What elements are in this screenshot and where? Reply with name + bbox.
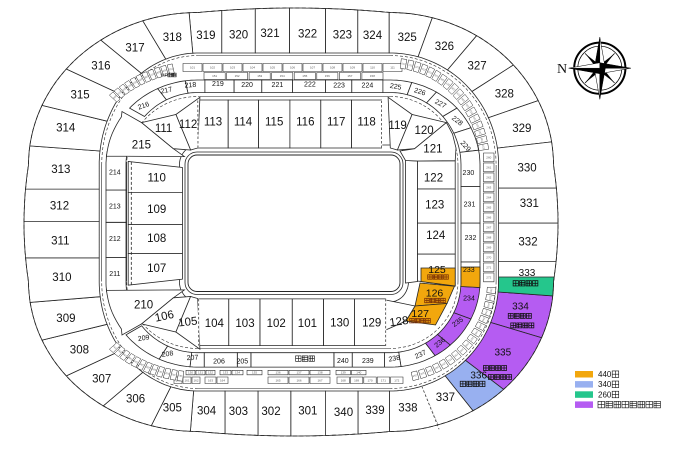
svg-text:272: 272 — [486, 276, 491, 280]
svg-text:135: 135 — [252, 371, 257, 375]
svg-text:VIP: VIP — [160, 73, 167, 78]
svg-text:165: 165 — [275, 378, 280, 382]
svg-text:125: 125 — [428, 264, 446, 276]
svg-text:130: 130 — [330, 317, 349, 329]
svg-text:326: 326 — [435, 41, 454, 53]
svg-text:317: 317 — [125, 42, 144, 54]
svg-text:261: 261 — [486, 166, 491, 170]
svg-text:268: 268 — [486, 236, 491, 240]
svg-text:161: 161 — [184, 378, 189, 382]
svg-text:219: 219 — [212, 81, 224, 88]
svg-text:108: 108 — [330, 66, 335, 70]
svg-text:231: 231 — [464, 201, 476, 208]
svg-text:138: 138 — [317, 371, 322, 375]
svg-text:136: 136 — [275, 371, 280, 375]
svg-text:265: 265 — [486, 206, 491, 210]
svg-text:304: 304 — [197, 405, 217, 417]
svg-text:312: 312 — [50, 201, 69, 213]
svg-text:269: 269 — [486, 246, 491, 250]
svg-text:338: 338 — [398, 402, 417, 414]
svg-text:102: 102 — [210, 66, 215, 70]
svg-text:214: 214 — [109, 169, 121, 176]
svg-text:102: 102 — [267, 318, 286, 330]
svg-text:151: 151 — [212, 74, 217, 78]
svg-text:330: 330 — [518, 163, 537, 175]
svg-text:334: 334 — [512, 302, 529, 313]
svg-text:218: 218 — [184, 82, 196, 90]
svg-text:153: 153 — [257, 74, 262, 78]
svg-text:213: 213 — [109, 203, 121, 210]
svg-text:122: 122 — [424, 172, 443, 184]
svg-text:305: 305 — [163, 403, 182, 415]
svg-text:332: 332 — [518, 237, 537, 249]
svg-text:221: 221 — [272, 82, 284, 89]
svg-text:112: 112 — [179, 119, 197, 131]
svg-text:270: 270 — [486, 256, 491, 260]
svg-text:325: 325 — [398, 32, 417, 44]
svg-text:323: 323 — [333, 29, 352, 41]
svg-text:126: 126 — [426, 288, 444, 300]
svg-text:110: 110 — [148, 173, 166, 185]
svg-text:113: 113 — [204, 117, 222, 129]
svg-text:337: 337 — [436, 392, 455, 404]
svg-text:263: 263 — [486, 186, 491, 190]
svg-text:266: 266 — [486, 216, 491, 220]
svg-text:264: 264 — [486, 196, 491, 200]
svg-text:271: 271 — [486, 266, 491, 270]
svg-text:105: 105 — [270, 66, 275, 70]
svg-text:310: 310 — [52, 272, 71, 284]
svg-text:118: 118 — [357, 117, 375, 129]
svg-text:158: 158 — [370, 74, 375, 78]
svg-text:103: 103 — [230, 66, 235, 70]
svg-text:207: 207 — [187, 354, 199, 362]
svg-text:313: 313 — [51, 164, 70, 176]
svg-text:260: 260 — [598, 390, 612, 399]
svg-text:340: 340 — [598, 380, 612, 389]
svg-text:120: 120 — [415, 125, 434, 137]
svg-text:315: 315 — [71, 90, 90, 102]
svg-text:223: 223 — [333, 82, 345, 89]
svg-text:103: 103 — [235, 318, 254, 330]
svg-text:107: 107 — [310, 66, 315, 70]
svg-text:234: 234 — [463, 295, 475, 302]
svg-text:157: 157 — [347, 74, 352, 78]
svg-text:302: 302 — [261, 406, 280, 418]
svg-text:169: 169 — [354, 378, 359, 382]
svg-text:240: 240 — [337, 358, 349, 365]
svg-text:121: 121 — [423, 143, 442, 155]
svg-text:140: 140 — [356, 371, 361, 375]
svg-text:239: 239 — [362, 358, 374, 365]
svg-text:210: 210 — [134, 299, 153, 311]
svg-text:260: 260 — [486, 156, 491, 160]
svg-text:319: 319 — [196, 30, 215, 42]
svg-text:101: 101 — [298, 318, 317, 330]
svg-text:106: 106 — [290, 66, 295, 70]
svg-text:116: 116 — [296, 117, 314, 129]
svg-text:109: 109 — [350, 66, 355, 70]
svg-text:139: 139 — [341, 371, 346, 375]
svg-text:129: 129 — [362, 317, 381, 329]
svg-text:115: 115 — [265, 117, 283, 129]
svg-text:133: 133 — [223, 371, 228, 375]
svg-text:114: 114 — [234, 117, 253, 129]
svg-text:124: 124 — [426, 230, 446, 242]
svg-text:303: 303 — [229, 406, 248, 418]
svg-text:164: 164 — [220, 378, 225, 382]
svg-text:107: 107 — [147, 263, 166, 275]
svg-text:137: 137 — [296, 371, 301, 375]
svg-text:172: 172 — [394, 378, 399, 382]
svg-text:333: 333 — [519, 268, 536, 279]
svg-text:162: 162 — [193, 378, 198, 382]
svg-text:322: 322 — [298, 29, 317, 41]
svg-text:324: 324 — [363, 30, 383, 42]
svg-text:331: 331 — [520, 198, 539, 210]
svg-text:311: 311 — [51, 236, 69, 248]
svg-text:170: 170 — [367, 378, 372, 382]
svg-text:131: 131 — [198, 371, 203, 375]
svg-text:130: 130 — [188, 371, 193, 375]
svg-text:163: 163 — [208, 378, 213, 382]
svg-text:328: 328 — [495, 88, 514, 100]
svg-text:117: 117 — [327, 117, 345, 129]
svg-text:314: 314 — [56, 122, 76, 134]
svg-text:104: 104 — [250, 66, 255, 70]
svg-text:108: 108 — [147, 233, 166, 245]
svg-text:111: 111 — [155, 123, 172, 135]
svg-text:123: 123 — [425, 200, 444, 212]
svg-text:104: 104 — [205, 318, 225, 330]
svg-text:327: 327 — [468, 61, 487, 73]
svg-text:232: 232 — [465, 235, 477, 242]
svg-text:N: N — [557, 62, 567, 77]
svg-text:101: 101 — [190, 66, 195, 70]
svg-text:152: 152 — [235, 74, 240, 78]
svg-text:306: 306 — [126, 393, 145, 405]
svg-text:168: 168 — [341, 378, 346, 382]
svg-text:156: 156 — [325, 74, 330, 78]
svg-text:339: 339 — [365, 405, 384, 417]
svg-text:166: 166 — [296, 378, 301, 382]
svg-text:301: 301 — [298, 406, 317, 418]
svg-text:262: 262 — [486, 176, 491, 180]
svg-text:206: 206 — [213, 359, 225, 366]
svg-text:335: 335 — [494, 348, 511, 359]
svg-text:220: 220 — [241, 82, 253, 89]
svg-text:132: 132 — [208, 371, 213, 375]
svg-text:215: 215 — [132, 139, 151, 151]
svg-text:318: 318 — [163, 32, 182, 44]
svg-text:321: 321 — [260, 28, 279, 40]
svg-text:222: 222 — [304, 82, 316, 89]
svg-text:267: 267 — [486, 226, 491, 230]
svg-text:111: 111 — [390, 66, 395, 70]
svg-text:316: 316 — [91, 61, 110, 73]
svg-text:320: 320 — [229, 29, 248, 41]
svg-text:212: 212 — [109, 236, 121, 243]
svg-text:134: 134 — [235, 371, 240, 375]
svg-text:230: 230 — [463, 170, 475, 177]
svg-text:167: 167 — [317, 378, 322, 382]
svg-text:336: 336 — [470, 371, 487, 382]
svg-text:309: 309 — [56, 313, 75, 325]
svg-text:109: 109 — [147, 204, 166, 216]
svg-text:329: 329 — [512, 123, 531, 135]
svg-text:224: 224 — [362, 82, 374, 89]
svg-text:171: 171 — [381, 378, 386, 382]
svg-text:308: 308 — [70, 345, 89, 357]
svg-text:154: 154 — [280, 74, 285, 78]
svg-text:440: 440 — [598, 370, 612, 379]
svg-text:105: 105 — [178, 316, 198, 330]
svg-text:233: 233 — [463, 267, 475, 274]
svg-text:211: 211 — [109, 271, 120, 278]
svg-text:110: 110 — [370, 66, 375, 70]
svg-text:340: 340 — [334, 407, 353, 419]
svg-text:205: 205 — [236, 359, 248, 366]
svg-text:119: 119 — [388, 120, 406, 132]
svg-text:307: 307 — [92, 373, 111, 385]
svg-text:155: 155 — [302, 74, 307, 78]
